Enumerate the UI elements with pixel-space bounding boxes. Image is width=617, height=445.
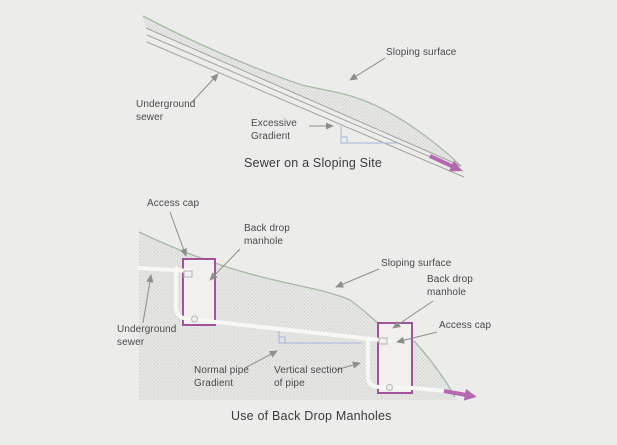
top-diagram	[143, 16, 464, 177]
label-sloping-surface-bottom: Sloping surface	[381, 258, 451, 271]
label-access-cap-left: Access cap	[147, 198, 199, 211]
access-cap-symbol-right	[379, 338, 387, 344]
title-sewer-on-sloping-site: Sewer on a Sloping Site	[244, 156, 382, 170]
label-access-cap-right: Access cap	[439, 320, 491, 333]
pipe-junction-right	[387, 385, 393, 391]
title-use-of-back-drop-manholes: Use of Back Drop Manholes	[231, 409, 392, 423]
leader-sloping-surface	[350, 58, 385, 80]
label-underground-sewer-bottom: Underground sewer	[117, 324, 176, 349]
right-angle-marker	[341, 137, 347, 143]
label-normal-pipe-gradient: Normal pipe Gradient	[194, 365, 249, 390]
diagram-canvas: Sloping surface Underground sewer Excess…	[0, 0, 617, 445]
sloping-ground-hatch	[143, 16, 461, 166]
label-vertical-section-of-pipe: Vertical section of pipe	[274, 365, 343, 390]
access-cap-symbol-left	[184, 271, 192, 277]
label-back-drop-manhole-right: Back drop manhole	[427, 274, 473, 299]
leader-underground-sewer	[192, 74, 218, 102]
label-sloping-surface-top: Sloping surface	[386, 47, 456, 60]
pipe-junction-left	[192, 316, 198, 322]
label-excessive-gradient: Excessive Gradient	[251, 118, 297, 143]
leader-sloping-surface	[336, 269, 379, 287]
label-underground-sewer-top: Underground sewer	[136, 99, 195, 124]
back-drop-manhole-right-box	[378, 323, 412, 393]
label-back-drop-manhole-left: Back drop manhole	[244, 223, 290, 248]
